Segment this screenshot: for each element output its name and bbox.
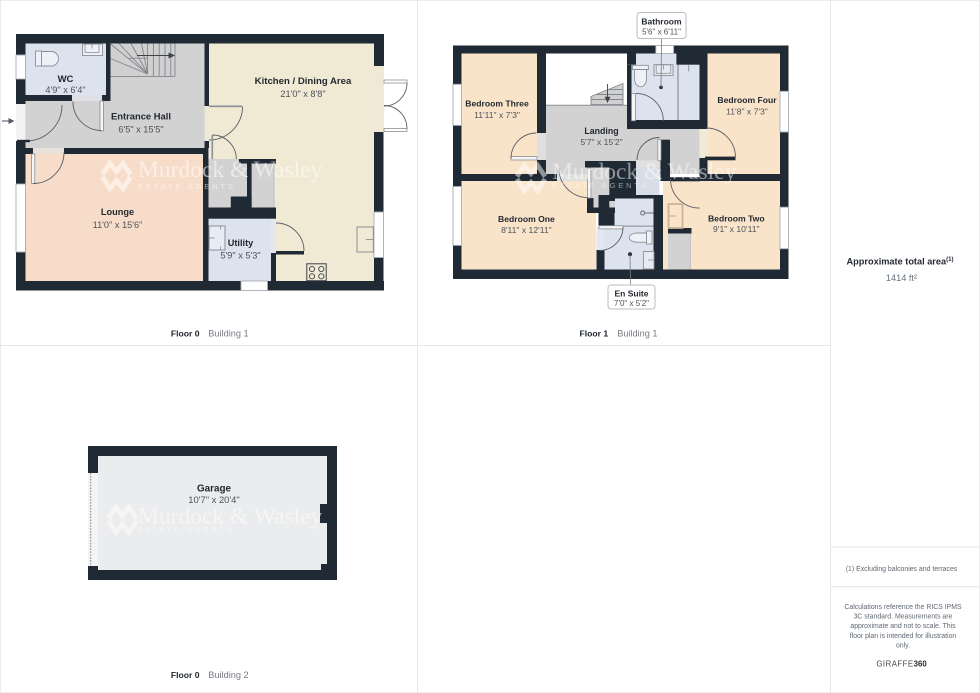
svg-text:approximate and not to scale.: approximate and not to scale. This [850,623,956,630]
svg-text:21'0" x 8'8": 21'0" x 8'8" [280,89,325,99]
svg-text:Landing: Landing [584,126,618,136]
svg-text:Building 1: Building 1 [208,328,248,338]
svg-text:(1) Excluding balconies and te: (1) Excluding balconies and terraces [846,566,958,573]
svg-text:Bedroom Two: Bedroom Two [708,213,765,223]
svg-text:7'0" x 5'2": 7'0" x 5'2" [614,299,649,308]
svg-text:4'9" x 6'4": 4'9" x 6'4" [45,85,85,95]
svg-text:Lounge: Lounge [101,207,134,217]
svg-text:Building 2: Building 2 [208,670,248,680]
svg-text:5'9" x 5'3": 5'9" x 5'3" [220,250,260,260]
svg-text:Entrance Hall: Entrance Hall [111,110,171,121]
svg-text:3C standard. Measurements are: 3C standard. Measurements are [854,614,953,621]
svg-text:Building 1: Building 1 [617,328,657,338]
svg-text:9'1" x 10'11": 9'1" x 10'11" [713,224,760,234]
svg-text:11'8" x 7'3": 11'8" x 7'3" [726,106,768,116]
svg-text:ESTATE AGENTS: ESTATE AGENTS [552,181,650,190]
svg-text:Calculations reference the RIC: Calculations reference the RICS IPMS [844,604,962,611]
svg-text:ESTATE AGENTS: ESTATE AGENTS [137,525,235,534]
svg-text:Floor 1: Floor 1 [580,328,609,338]
svg-text:Bathroom: Bathroom [641,16,682,26]
svg-text:1414 ft²: 1414 ft² [886,273,917,283]
svg-text:Bedroom Three: Bedroom Three [465,99,529,109]
svg-text:En Suite: En Suite [614,288,648,298]
svg-text:Murdock & Wasley: Murdock & Wasley [138,157,323,183]
svg-text:GIRAFFE360: GIRAFFE360 [876,659,927,668]
svg-text:Bedroom One: Bedroom One [498,214,555,224]
svg-text:only.: only. [896,642,910,649]
svg-text:Approximate total area(1): Approximate total area(1) [847,256,954,266]
svg-text:WC: WC [58,74,74,85]
svg-text:floor plan is intended for ill: floor plan is intended for illustration [850,633,957,640]
svg-text:11'11" x 7'3": 11'11" x 7'3" [474,110,520,120]
svg-text:11'0" x 15'6": 11'0" x 15'6" [93,220,143,230]
svg-text:Floor 0: Floor 0 [171,670,200,680]
svg-text:5'7" x 15'2": 5'7" x 15'2" [580,137,622,147]
svg-text:Bedroom Four: Bedroom Four [717,95,777,105]
svg-text:6'5" x 15'5": 6'5" x 15'5" [118,124,163,134]
svg-text:Utility: Utility [228,238,254,248]
svg-text:Garage: Garage [197,483,232,494]
svg-text:Kitchen / Dining Area: Kitchen / Dining Area [255,76,352,87]
svg-text:ESTATE AGENTS: ESTATE AGENTS [138,182,236,191]
svg-text:5'6" x 6'11": 5'6" x 6'11" [642,27,681,36]
svg-text:Floor 0: Floor 0 [171,328,200,338]
svg-text:8'11" x 12'11": 8'11" x 12'11" [501,225,552,235]
